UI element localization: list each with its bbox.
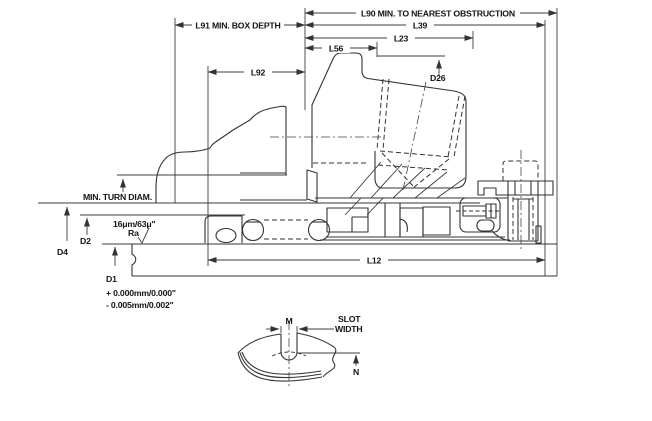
clamp-finger — [400, 208, 423, 237]
slot-end-view — [238, 321, 336, 386]
bracket-slot-hole — [477, 220, 494, 231]
rail-end-cap — [205, 216, 242, 243]
surface-finish-symbol — [138, 228, 149, 243]
label-slot-width-2: WIDTH — [335, 324, 362, 334]
screw-head-left — [243, 220, 264, 241]
dimension-labels: L90 MIN. TO NEAREST OBSTRUCTION L39 L23 … — [57, 8, 520, 377]
bolt-head-hidden — [503, 161, 538, 181]
label-d1: D1 — [106, 274, 117, 284]
label-d26: D26 — [430, 73, 446, 83]
technical-drawing-canvas: L90 MIN. TO NEAREST OBSTRUCTION L39 L23 … — [0, 0, 652, 421]
bolt-head-facets — [508, 181, 538, 195]
label-l91: L91 MIN. BOX DEPTH — [195, 21, 280, 31]
clamp-block-right — [423, 207, 450, 235]
clamp-post — [385, 203, 400, 237]
label-min-turn-diam: MIN. TURN DIAM. — [83, 192, 152, 202]
label-d4: D4 — [57, 247, 68, 257]
label-l23: L23 — [394, 34, 409, 44]
label-l92: L92 — [251, 68, 266, 78]
label-m: M — [285, 316, 292, 326]
plate-break-line — [132, 244, 136, 276]
label-l39: L39 — [413, 21, 428, 31]
clamp-block-left — [327, 208, 368, 232]
label-l90: L90 MIN. TO NEAREST OBSTRUCTION — [361, 9, 515, 19]
label-n: N — [353, 367, 359, 377]
screw-head-right — [309, 220, 330, 241]
turret-profile-outline — [156, 106, 286, 203]
label-d1-tolerance-plus: + 0.000mm/0.000" — [106, 288, 176, 298]
label-l12: L12 — [367, 256, 382, 266]
technical-drawing-page: L90 MIN. TO NEAREST OBSTRUCTION L39 L23 … — [0, 0, 652, 421]
clamp-rail-assembly — [205, 198, 510, 243]
main-cross-section-view — [38, 8, 557, 366]
label-slot-width-1: SLOT — [338, 314, 361, 324]
turret-profile — [156, 106, 307, 203]
cap-screw-head — [216, 229, 236, 243]
label-l56: L56 — [329, 44, 344, 54]
wedge-top-edge-left — [238, 334, 281, 353]
wedge-break-line — [323, 347, 336, 377]
bore-axis-centerline — [403, 82, 426, 190]
label-surface-finish-ra: Ra — [128, 228, 139, 238]
label-d1-tolerance-minus: - 0.005mm/0.002" — [106, 300, 174, 310]
label-d2: D2 — [80, 236, 91, 246]
clamping-bolt — [503, 150, 541, 252]
wedge-top-edge-right — [297, 333, 334, 347]
wedge-gib-hatched — [307, 170, 317, 202]
